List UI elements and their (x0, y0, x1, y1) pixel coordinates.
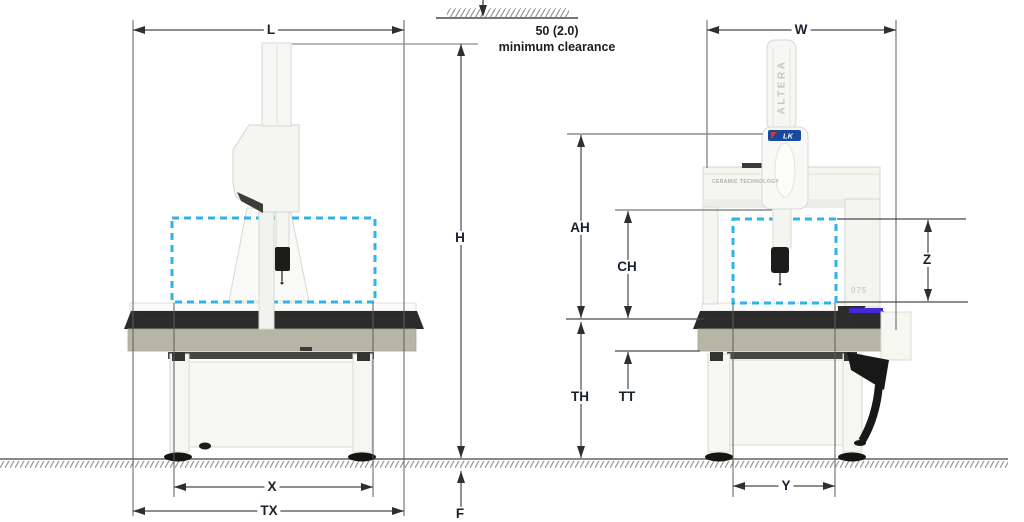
right-probe (771, 247, 789, 273)
ceiling-hatch (447, 8, 569, 17)
dim-label-TH: TH (568, 390, 592, 404)
ceiling-clearance-symbol (436, 0, 578, 18)
right-left-leg (703, 207, 718, 304)
right-foot (705, 453, 733, 462)
dim-label-TX: TX (257, 504, 280, 518)
left-foot (164, 453, 192, 462)
dim-label-TT: TT (616, 390, 639, 404)
ground-hatch (0, 461, 1008, 468)
right-foot (838, 453, 866, 462)
cmm-dimension-diagram: L H X TX F W AH CH TH TT Z Y 50 (2.0) mi… (0, 0, 1024, 522)
dim-label-AH: AH (567, 221, 593, 235)
dim-label-Z: Z (920, 253, 934, 267)
left-z-ram (259, 212, 274, 329)
dim-label-H: H (452, 231, 468, 245)
dim-label-W: W (792, 23, 811, 37)
right-granite (698, 329, 888, 351)
dim-label-Y: Y (778, 479, 793, 493)
dim-label-L: L (264, 23, 278, 37)
right-z-ram (773, 207, 791, 248)
right-table-top (693, 311, 891, 329)
dim-label-CH: CH (614, 260, 640, 274)
clearance-value: 50 (2.0) (535, 25, 578, 39)
accent-strip (849, 308, 883, 313)
beam-technology-text: CERAMIC TECHNOLOGY (712, 179, 779, 185)
brand-label-altera: ALTERA (777, 60, 788, 115)
cable-hose (862, 385, 879, 441)
left-probe-quill (276, 212, 289, 248)
dim-label-F: F (453, 507, 467, 521)
left-foot (348, 453, 376, 462)
lk-logo-text: LK (783, 132, 793, 141)
left-probe (275, 247, 290, 271)
diagram-canvas (0, 0, 1024, 522)
clearance-note: minimum clearance (499, 41, 616, 55)
dim-label-X: X (264, 480, 279, 494)
model-number-text: 075 (851, 286, 867, 295)
